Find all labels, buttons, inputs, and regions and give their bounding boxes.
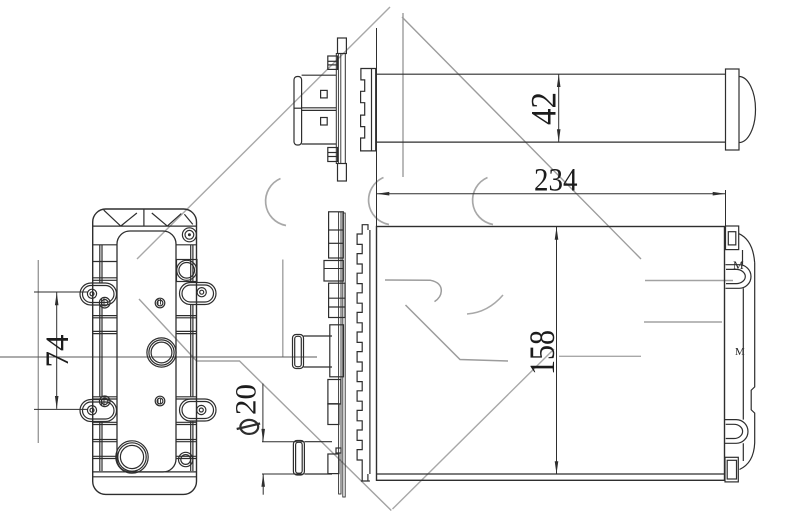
svg-text:74: 74 xyxy=(40,335,76,368)
svg-text:158: 158 xyxy=(522,330,562,375)
svg-text:20: 20 xyxy=(230,384,263,415)
svg-text:42: 42 xyxy=(524,92,564,125)
svg-text:234: 234 xyxy=(534,162,578,198)
